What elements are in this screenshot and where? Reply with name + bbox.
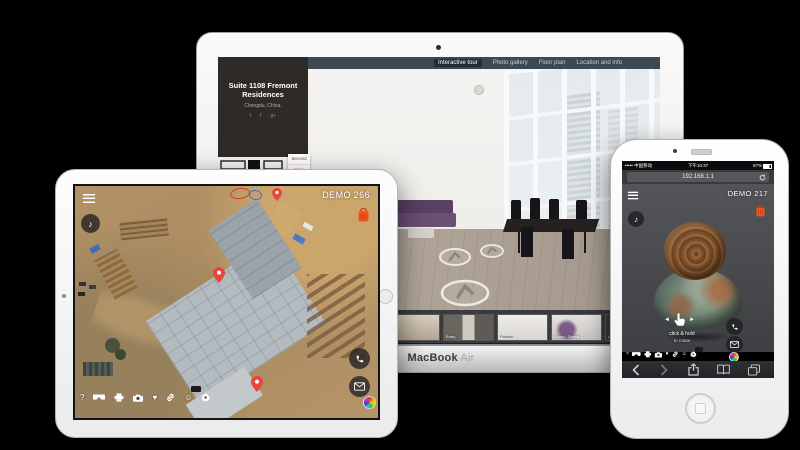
iphone-camera-icon [673,149,677,153]
arrow-left-icon: ◄ [664,317,670,323]
basket-icon[interactable] [756,205,765,217]
help-icon[interactable]: ? [626,352,629,357]
thumbnail-label: Powder [500,334,514,339]
camera-icon[interactable] [655,351,662,357]
webcam-icon [436,45,441,50]
blue-truck [89,244,101,254]
heart-icon[interactable]: ♥ [152,393,157,402]
tab-floor-plan[interactable]: Floor plan [539,60,566,66]
link-icon[interactable] [166,393,175,402]
table-leg [584,231,586,253]
lumber-stacks [119,218,169,241]
vr-goggles-icon[interactable] [632,352,641,357]
phone-icon [731,323,739,331]
dining-chair [521,227,533,257]
home-square-icon [695,403,706,414]
ottoman [408,228,434,238]
ipad-camera-icon [62,294,66,298]
tab-location-info[interactable]: Location and info [576,60,622,66]
refresh-icon[interactable] [759,174,766,181]
thumbnail-label: Entry [446,334,455,339]
envelope-icon [730,341,739,348]
property-location: Chengdu, China. [218,103,308,109]
ipad-home-button[interactable] [378,289,393,304]
printer-icon[interactable] [644,351,651,358]
hand-pointer-icon [673,312,686,327]
tree [115,349,126,360]
iphone-toolbar: ? ♥ ☺ [626,351,697,358]
ceiling-sensor [474,85,484,95]
menu-icon[interactable] [83,194,95,203]
iphone-home-button[interactable] [685,393,716,424]
heart-icon[interactable]: ♥ [666,352,669,357]
nav-hotspot[interactable] [438,247,472,267]
music-note-icon: ♪ [88,219,93,229]
ipad-screen: ♪ DEMO 266 ? ♥ ☺ [73,184,380,420]
battery-percent: 87% [753,161,762,170]
phone-icon [355,354,365,364]
parked-car [79,282,86,286]
music-button[interactable]: ♪ [81,214,100,233]
settings-gear-icon[interactable] [201,393,210,402]
vr-goggles-icon[interactable] [93,394,105,401]
share-icon[interactable] [688,363,699,376]
vr-maker-app: DEMO 217 ♪ ◄ ► click & hold t [622,184,774,352]
arrow-right-icon: ► [689,317,695,323]
settings-gear-icon[interactable] [690,351,697,358]
nav-hotspot[interactable] [479,243,505,259]
demo-label: DEMO 217 [728,189,768,198]
google-plus-icon[interactable]: g+ [271,113,277,119]
map-pin[interactable] [251,376,263,392]
menu-icon[interactable] [628,192,638,200]
ram-horn-spiral [664,222,726,280]
dining-chair [562,229,574,259]
settings-tooltip [191,386,201,392]
music-button[interactable]: ♪ [628,211,644,227]
twitter-icon[interactable]: t [250,113,251,119]
printer-icon[interactable] [114,393,124,402]
status-time: 下午10:37 [622,161,774,170]
smiley-icon[interactable]: ☺ [682,352,687,357]
thumbnail-pano[interactable]: Living / Dining [551,314,602,341]
ios-status-bar: ••••• 中国移动 下午10:37 87% [622,161,774,170]
bookmarks-icon[interactable] [717,364,730,375]
demo-label: DEMO 266 [322,190,370,200]
site-shed [83,362,113,376]
tabs-icon[interactable] [748,364,760,376]
rotate-hint: ◄ ► [664,312,695,327]
scene: Interactive tour Photo gallery Floor pla… [0,0,800,450]
nav-hotspot[interactable] [439,278,491,308]
social-links: t f g+ [218,113,308,119]
white-truck [302,222,313,231]
hint-line2: to rotate [622,338,742,343]
parked-car [78,292,85,296]
thumbnail-pano[interactable]: Powder [497,314,548,341]
floor-option-second[interactable]: Second [288,154,310,165]
parked-car [89,285,96,289]
basket-icon[interactable] [358,208,369,222]
safari-toolbar [622,361,774,378]
music-note-icon: ♪ [634,215,638,224]
forward-icon[interactable] [660,364,668,376]
ipad-toolbar: ? ♥ ☺ [80,393,210,402]
camera-icon[interactable] [133,394,143,402]
phone-button[interactable] [726,318,743,335]
phone-button[interactable] [349,348,370,369]
thumbnail-label: Living / Dining [554,334,579,339]
email-button[interactable] [726,336,743,353]
sofa-seat [392,213,456,227]
material-clutter [307,274,365,358]
safari-url-bar: 192.168.1.1 [622,170,774,184]
link-icon[interactable] [672,351,679,358]
envelope-icon [354,382,365,391]
smiley-icon[interactable]: ☺ [184,393,192,402]
help-icon[interactable]: ? [80,393,84,402]
map-pin[interactable] [272,188,282,201]
property-title: Suite 1108 Fremont Residences [218,81,308,99]
table-leg [518,231,520,253]
thumbnail-pano[interactable]: Entry [443,314,494,341]
iphone-speaker [691,149,712,155]
url-field[interactable]: 192.168.1.1 [627,172,769,182]
tab-interactive-tour[interactable]: Interactive tour [434,59,482,67]
tab-photo-gallery[interactable]: Photo gallery [493,60,528,66]
hint-line1: click & hold [622,331,742,337]
tour-tabbar: Interactive tour Photo gallery Floor pla… [308,57,660,69]
battery-icon [763,164,772,170]
iphone-screen: ••••• 中国移动 下午10:37 87% 192.168.1.1 DEMO … [622,161,774,378]
email-button[interactable] [349,376,370,397]
back-icon[interactable] [632,364,640,376]
color-wheel-button[interactable] [363,396,376,409]
facebook-icon[interactable]: f [260,113,261,119]
map-pin[interactable] [213,267,225,283]
